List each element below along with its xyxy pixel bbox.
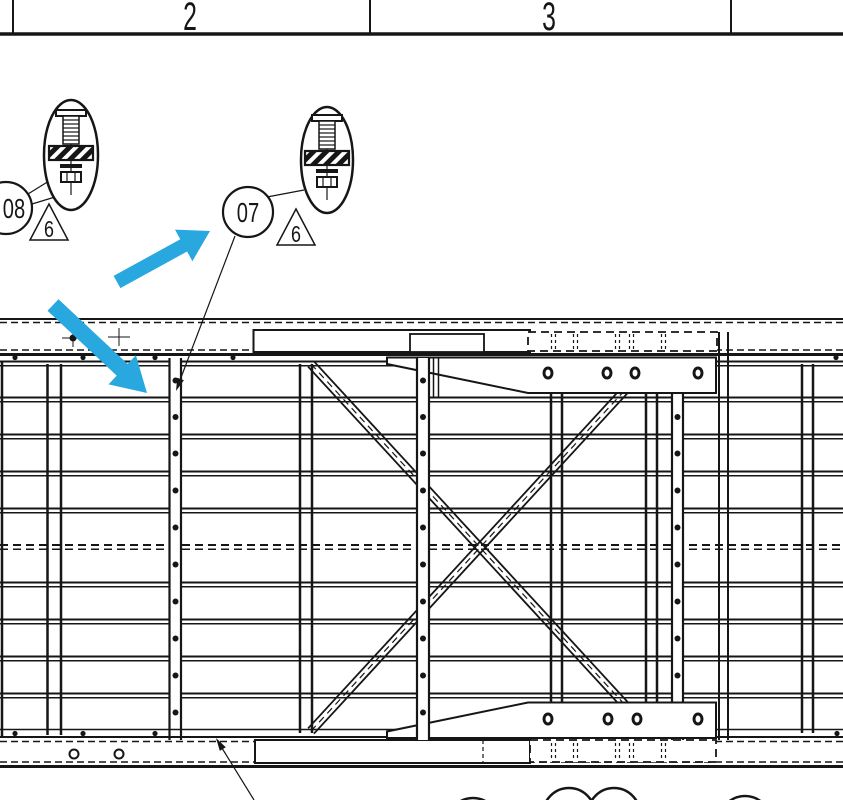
revision-number: 6 bbox=[291, 222, 301, 248]
revision-number: 6 bbox=[44, 217, 54, 243]
partial-balloon bbox=[719, 796, 771, 800]
x-bracing bbox=[308, 361, 652, 733]
revision-triangle-right: 6 bbox=[277, 209, 315, 248]
bolt-symbol bbox=[70, 750, 79, 759]
highlight-arrows bbox=[48, 230, 211, 393]
highlight-arrow-upper bbox=[114, 230, 210, 289]
detail-bubble-bolt-right bbox=[301, 107, 353, 213]
bottom-partial-balloons bbox=[447, 788, 771, 800]
engineering-drawing: 2 3 bbox=[0, 0, 843, 800]
balloon-07: 07 bbox=[223, 187, 273, 237]
balloon-08-label: 08 bbox=[3, 194, 25, 225]
cad-drawing-viewport: 2 3 bbox=[0, 0, 843, 800]
hidden-splice-plate bbox=[528, 332, 717, 351]
bolt-symbol bbox=[115, 750, 124, 759]
cover-plate bbox=[255, 740, 530, 763]
detail-bubble-bolt-left bbox=[44, 100, 98, 210]
zone-label-3: 3 bbox=[542, 0, 556, 40]
cover-plate-inner bbox=[410, 334, 484, 352]
floor-beam-post-left bbox=[169, 358, 182, 740]
cover-plate bbox=[254, 330, 531, 352]
floor-beam-post-right bbox=[672, 358, 684, 740]
hidden-splice-plate bbox=[530, 740, 716, 762]
balloon-07-label: 07 bbox=[237, 198, 259, 229]
drawing-zone-strip: 2 3 bbox=[0, 0, 843, 40]
leader-lines bbox=[28, 181, 304, 800]
revision-triangle-left: 6 bbox=[30, 204, 68, 243]
partial-balloon bbox=[543, 788, 595, 800]
leader-arrowhead bbox=[216, 738, 226, 751]
partial-balloon bbox=[588, 788, 640, 800]
balloon-08: 08 bbox=[0, 182, 32, 234]
zone-label-2: 2 bbox=[183, 0, 197, 40]
highlight-arrow-lower bbox=[48, 299, 148, 393]
